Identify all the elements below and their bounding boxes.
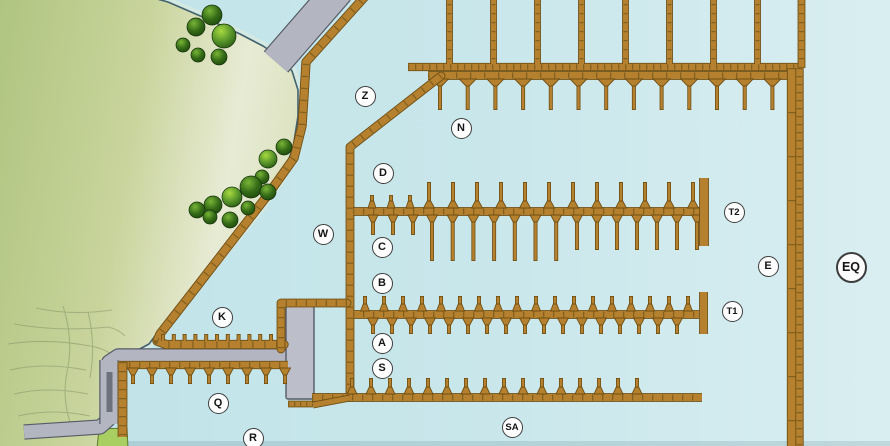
water-edge-shade — [0, 441, 890, 446]
dock-label-e: E — [758, 256, 779, 277]
tree — [240, 176, 262, 198]
dock-label-n: N — [451, 118, 472, 139]
dock-label-text: T2 — [728, 207, 739, 218]
dock-label-z: Z — [355, 86, 376, 107]
tree — [212, 24, 236, 48]
dock-label-d: D — [373, 163, 394, 184]
tree — [276, 139, 292, 155]
dock-label-sa: SA — [502, 417, 523, 438]
dock-label-b: B — [372, 273, 393, 294]
dock-label-s: S — [372, 358, 393, 379]
dock-label-text: E — [764, 260, 771, 272]
marina-map-canvas — [0, 0, 890, 446]
dock-label-w: W — [313, 224, 334, 245]
tree — [222, 212, 238, 228]
dock-label-text: B — [378, 277, 386, 289]
dock-label-text: Q — [214, 397, 223, 409]
dock-label-q: Q — [208, 393, 229, 414]
dock-label-text: Z — [362, 90, 369, 102]
dock-label-a: A — [372, 333, 393, 354]
dock-label-text: A — [378, 337, 386, 349]
tree — [259, 150, 277, 168]
dock-label-t2: T2 — [724, 202, 745, 223]
marina-map: ZNDT2WCEEQBT1KASQSAR — [0, 0, 890, 446]
dock-label-eq: EQ — [836, 252, 867, 283]
tree — [191, 48, 205, 62]
dock-label-t1: T1 — [722, 301, 743, 322]
dock-label-text: EQ — [842, 260, 860, 274]
tree — [211, 49, 227, 65]
dock-label-text: S — [378, 362, 385, 374]
tree — [203, 210, 217, 224]
tree — [176, 38, 190, 52]
tree — [202, 5, 222, 25]
tree — [241, 201, 255, 215]
boat-ramp — [107, 372, 113, 412]
dock-label-c: C — [372, 237, 393, 258]
dock-label-text: T1 — [726, 306, 737, 317]
dock-label-text: R — [249, 432, 257, 444]
concrete-platform — [286, 306, 314, 399]
dock-label-k: K — [212, 307, 233, 328]
tree — [189, 202, 205, 218]
dock-label-text: N — [457, 122, 465, 134]
tree — [222, 187, 242, 207]
tree — [187, 18, 205, 36]
tree — [260, 184, 276, 200]
dock-label-text: C — [378, 241, 386, 253]
dock-label-text: SA — [505, 422, 518, 433]
dock-label-text: K — [218, 311, 226, 323]
dock-label-text: D — [379, 167, 387, 179]
dock-label-r: R — [243, 428, 264, 446]
dock-label-text: W — [318, 228, 328, 240]
